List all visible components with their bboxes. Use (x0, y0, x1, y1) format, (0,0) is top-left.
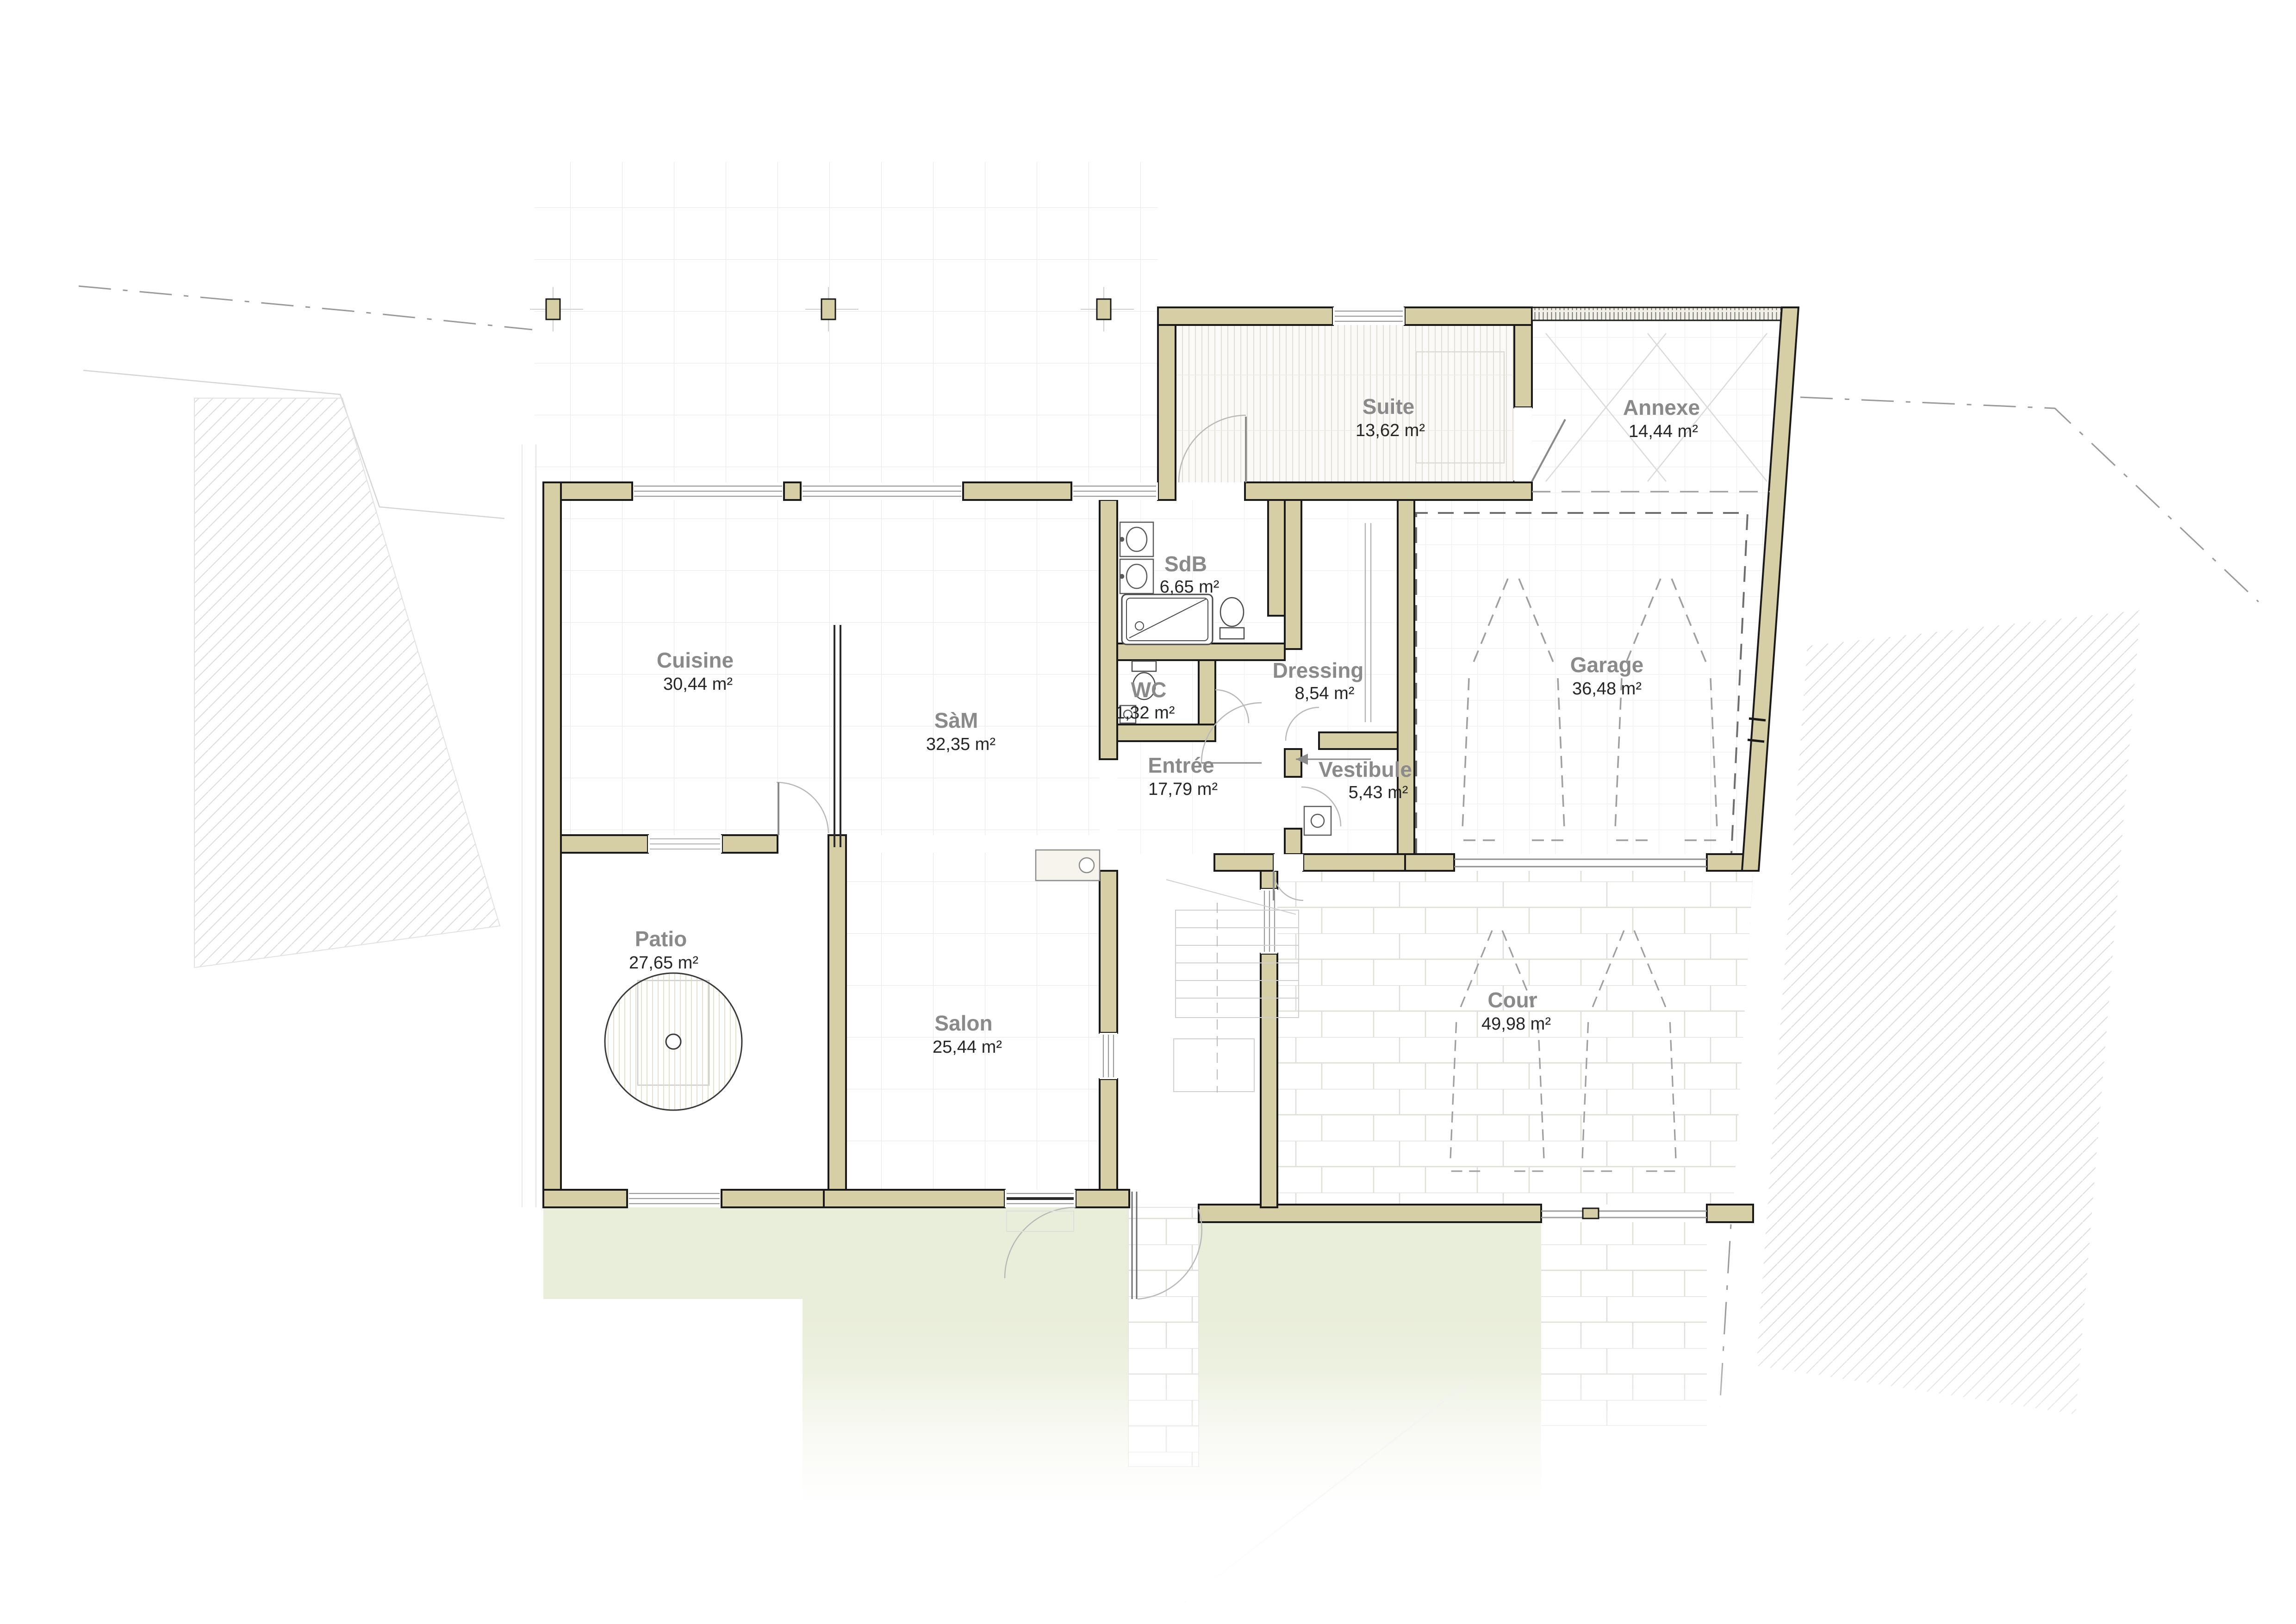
room-label-garage: Garage 36,48 m² (1570, 653, 1644, 699)
room-label-cuisine: Cuisine 30,44 m² (657, 648, 734, 694)
wall (1100, 1079, 1117, 1207)
patio-tree (605, 973, 742, 1110)
svg-text:SdB: SdB (1164, 552, 1207, 576)
floor-cour-brick (1277, 871, 1753, 1205)
wall (1199, 1205, 1541, 1222)
wall (784, 482, 801, 500)
svg-text:1,32 m²: 1,32 m² (1115, 703, 1175, 723)
floor-living-upper (561, 500, 1100, 835)
wall (1199, 660, 1215, 725)
wall-annexe-top (1532, 307, 1782, 320)
floor-garage (1405, 500, 1768, 854)
wall (1245, 482, 1532, 500)
svg-text:13,62 m²: 13,62 m² (1356, 421, 1425, 440)
svg-text:27,65 m²: 27,65 m² (629, 953, 698, 973)
svg-text:Salon: Salon (934, 1011, 992, 1035)
wall (1100, 871, 1117, 1033)
floor-suite-parquet (1176, 325, 1514, 482)
svg-text:SàM: SàM (934, 708, 978, 732)
svg-text:30,44 m²: 30,44 m² (663, 675, 733, 694)
wall (824, 1190, 1005, 1207)
svg-text:8,54 m²: 8,54 m² (1295, 684, 1355, 703)
wall (1285, 749, 1301, 777)
window-suite (1333, 307, 1405, 325)
window (627, 1190, 722, 1207)
wall (963, 482, 1071, 500)
floor-plan: Cuisine 30,44 m² SàM 32,35 m² Salon 25,4… (0, 0, 2296, 1624)
canopy-grid (535, 162, 1158, 482)
wall (1076, 1190, 1129, 1207)
room-label-entree: Entrée 17,79 m² (1148, 753, 1218, 799)
wall (1158, 307, 1333, 325)
window-salon-east (1100, 1033, 1117, 1079)
toilet-sdb (1220, 598, 1244, 639)
svg-text:Entrée: Entrée (1148, 753, 1214, 777)
wall-patio-salon (828, 835, 846, 1207)
wall (1100, 500, 1117, 759)
window-patio-divider (648, 835, 722, 853)
svg-text:Cour: Cour (1487, 988, 1537, 1012)
wall (722, 835, 778, 853)
room-label-annexe: Annexe 14,44 m² (1623, 395, 1700, 441)
svg-text:Vestibule: Vestibule (1319, 757, 1412, 781)
svg-text:5,43 m²: 5,43 m² (1349, 783, 1408, 802)
svg-text:32,35 m²: 32,35 m² (926, 735, 996, 754)
window (632, 482, 784, 500)
wall (543, 1190, 627, 1207)
svg-text:Garage: Garage (1570, 653, 1644, 677)
svg-text:Suite: Suite (1363, 394, 1414, 418)
wall (1268, 500, 1285, 616)
svg-text:Annexe: Annexe (1623, 395, 1700, 419)
svg-text:Cuisine: Cuisine (657, 648, 734, 672)
room-label-salon: Salon 25,44 m² (933, 1011, 1002, 1057)
window-entree-east (1261, 889, 1277, 954)
svg-text:25,44 m²: 25,44 m² (933, 1037, 1002, 1057)
svg-text:WC: WC (1131, 678, 1167, 702)
wall (1117, 643, 1285, 660)
wall (1319, 732, 1405, 749)
drawing-fade (504, 1315, 2180, 1602)
window (1071, 482, 1158, 500)
svg-text:6,65 m²: 6,65 m² (1160, 577, 1220, 597)
wall-left (543, 482, 561, 1207)
svg-text:Dressing: Dressing (1273, 658, 1364, 682)
svg-text:17,79 m²: 17,79 m² (1148, 780, 1218, 799)
wall (1514, 325, 1532, 407)
svg-text:Patio: Patio (635, 927, 687, 951)
wall (1405, 854, 1454, 871)
pergola-post (821, 299, 835, 319)
window (801, 482, 963, 500)
pergola-post (1097, 299, 1111, 319)
vestibule-basin (1304, 806, 1331, 835)
pergola-post (546, 299, 560, 319)
wall-suite-left (1158, 307, 1176, 500)
svg-text:14,44 m²: 14,44 m² (1629, 422, 1698, 441)
wall (1285, 500, 1301, 649)
wall (1261, 954, 1277, 1207)
wall (1405, 307, 1532, 325)
wall (1214, 854, 1274, 871)
svg-text:49,98 m²: 49,98 m² (1481, 1014, 1551, 1034)
wall (1117, 725, 1215, 741)
hatch-area-right (1756, 610, 2140, 1414)
wall (561, 835, 648, 853)
shower (1122, 594, 1213, 644)
wall (722, 1190, 824, 1207)
wall-gate-pier (1707, 1205, 1753, 1222)
kitchen-counter (1036, 850, 1100, 881)
svg-text:36,48 m²: 36,48 m² (1572, 679, 1642, 699)
wall (1285, 829, 1301, 854)
